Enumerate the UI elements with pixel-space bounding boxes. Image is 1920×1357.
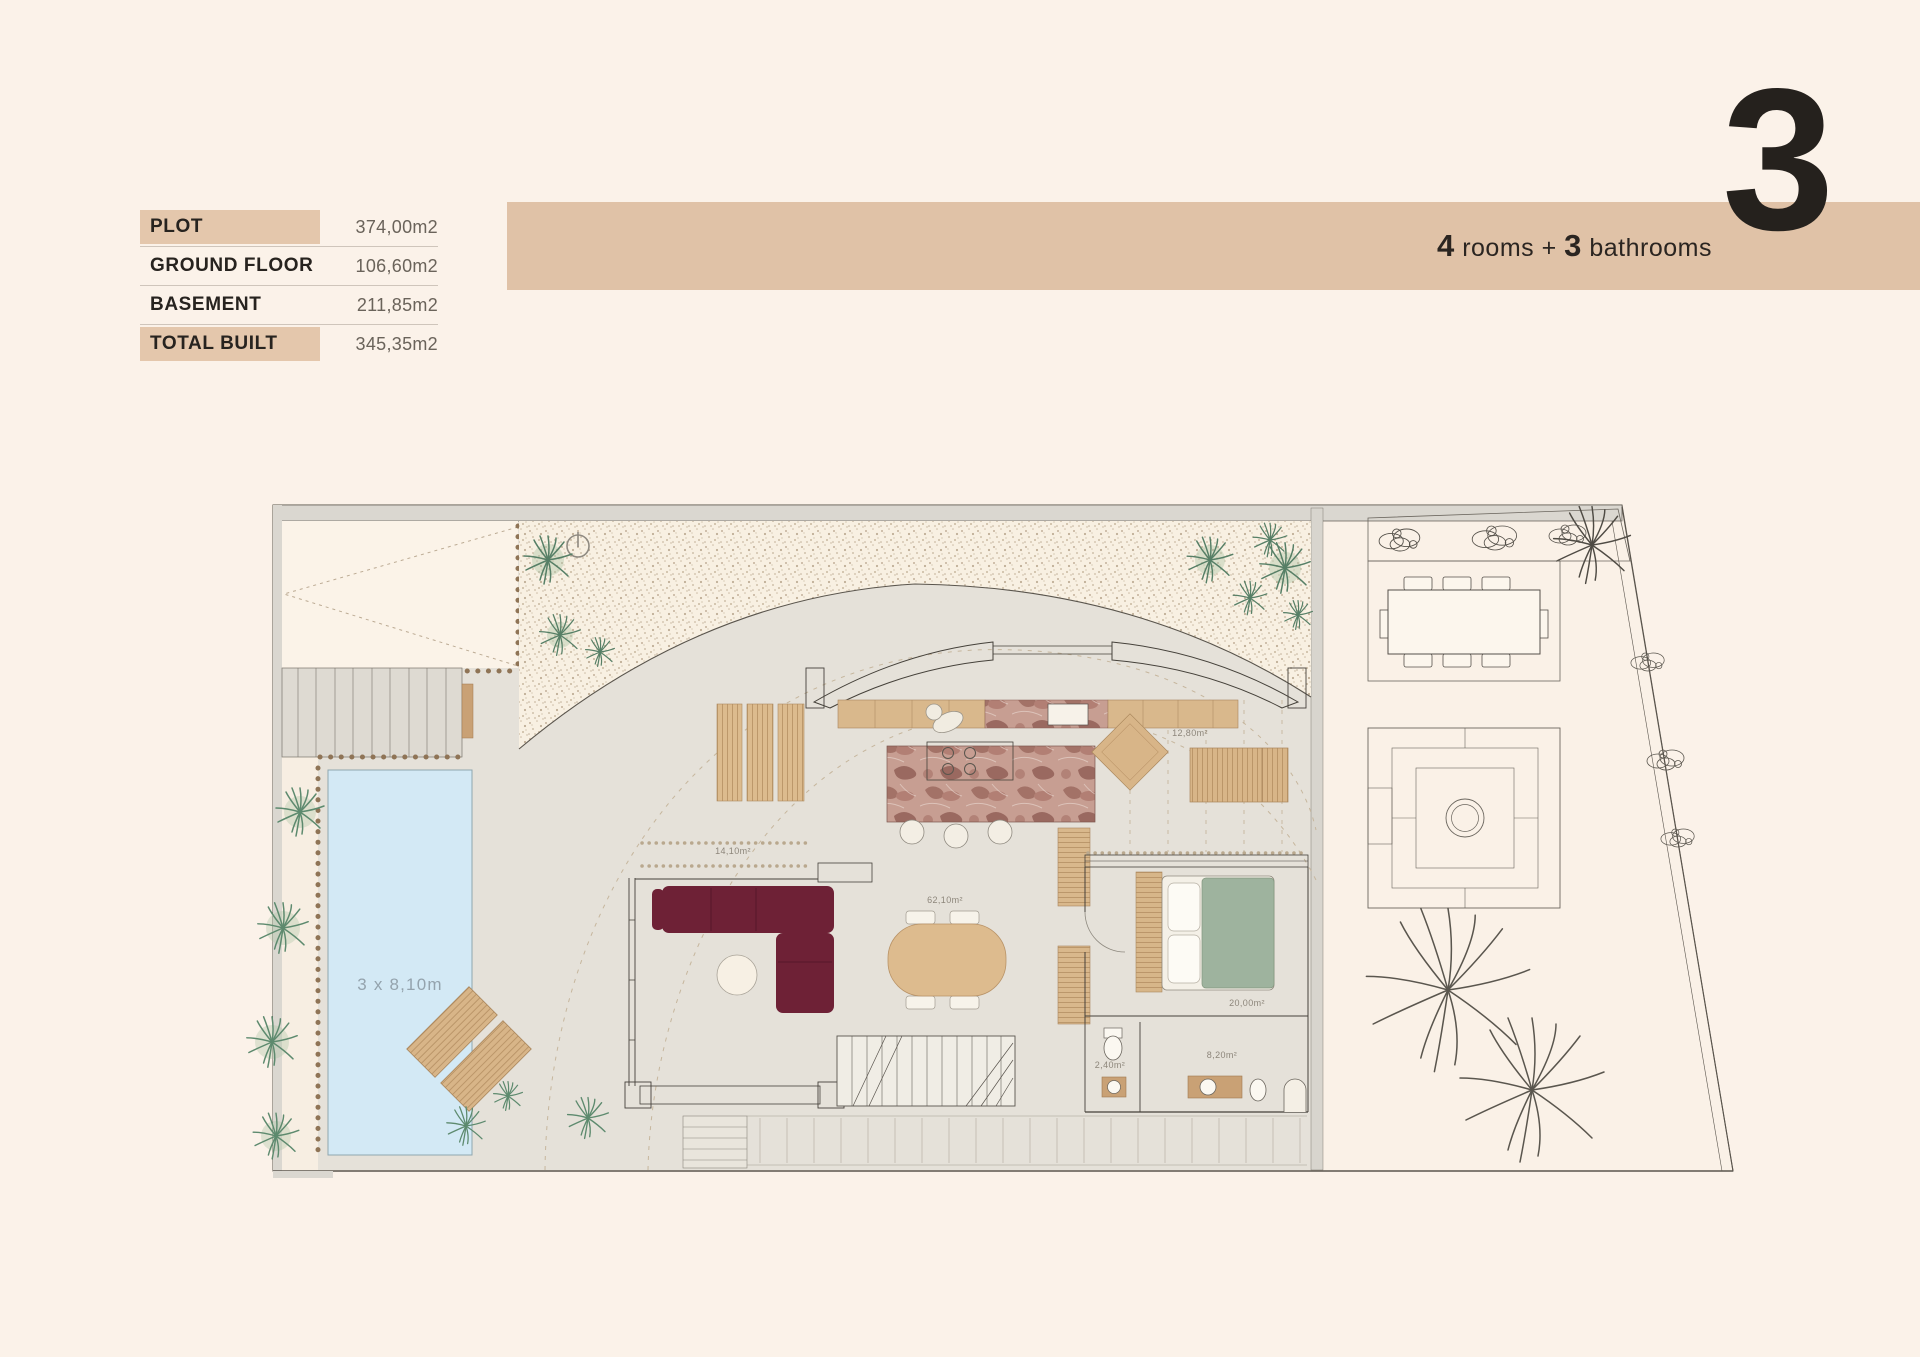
coffee-table (717, 955, 757, 995)
room-area-label: 2,40m² (1095, 1060, 1125, 1070)
toilet (1250, 1079, 1266, 1101)
exterior-stairs (282, 668, 473, 757)
toilet (1104, 1036, 1122, 1060)
deck-panels (717, 704, 804, 801)
brochure-page: { "colors": { "page_bg": "#fbf2e9", "acc… (0, 0, 1920, 1357)
bar-stool (988, 820, 1012, 844)
garden-dining-set (1380, 577, 1548, 667)
room-area-label: 20,00m² (1229, 998, 1265, 1008)
kitchen-cabinet-left (838, 700, 985, 728)
kitchen-counter-marble (985, 700, 1108, 728)
row-label: GROUND FLOOR (140, 255, 313, 277)
planter-bar (462, 684, 473, 738)
room-area-label: 8,20m² (1207, 1050, 1237, 1060)
pillow (1168, 935, 1200, 983)
bar-stool (944, 824, 968, 848)
staircase (837, 1036, 1015, 1106)
top-boundary-wall (273, 505, 1622, 521)
kitchen-sink (1048, 704, 1088, 725)
garden-dividing-wall (1311, 508, 1323, 1170)
pillow (1168, 883, 1200, 931)
row-value: 345,35m2 (356, 334, 438, 355)
pool-size-label: 3 x 8,10m (357, 975, 442, 994)
left-boundary-wall (273, 505, 282, 1171)
floor-plan-figure: 3 x 8,10m (0, 0, 1920, 1357)
room-area-label: 62,10m² (927, 895, 963, 905)
bar-stool (900, 820, 924, 844)
pool (328, 770, 472, 1155)
row-value: 106,60m2 (356, 256, 438, 277)
room-area-label: 14,10m² (715, 846, 751, 856)
room-area-label: 12,80m² (1172, 728, 1208, 738)
duvet (1202, 878, 1274, 988)
row-value: 211,85m2 (357, 295, 438, 316)
row-label: TOTAL BUILT (140, 333, 278, 355)
driveway (282, 521, 518, 671)
row-label: PLOT (140, 216, 203, 238)
row-label: BASEMENT (140, 294, 261, 316)
shower-niche (1284, 1079, 1306, 1112)
kitchen-island (887, 746, 1095, 822)
basin (1200, 1079, 1216, 1095)
row-value: 374,00m2 (356, 217, 438, 238)
